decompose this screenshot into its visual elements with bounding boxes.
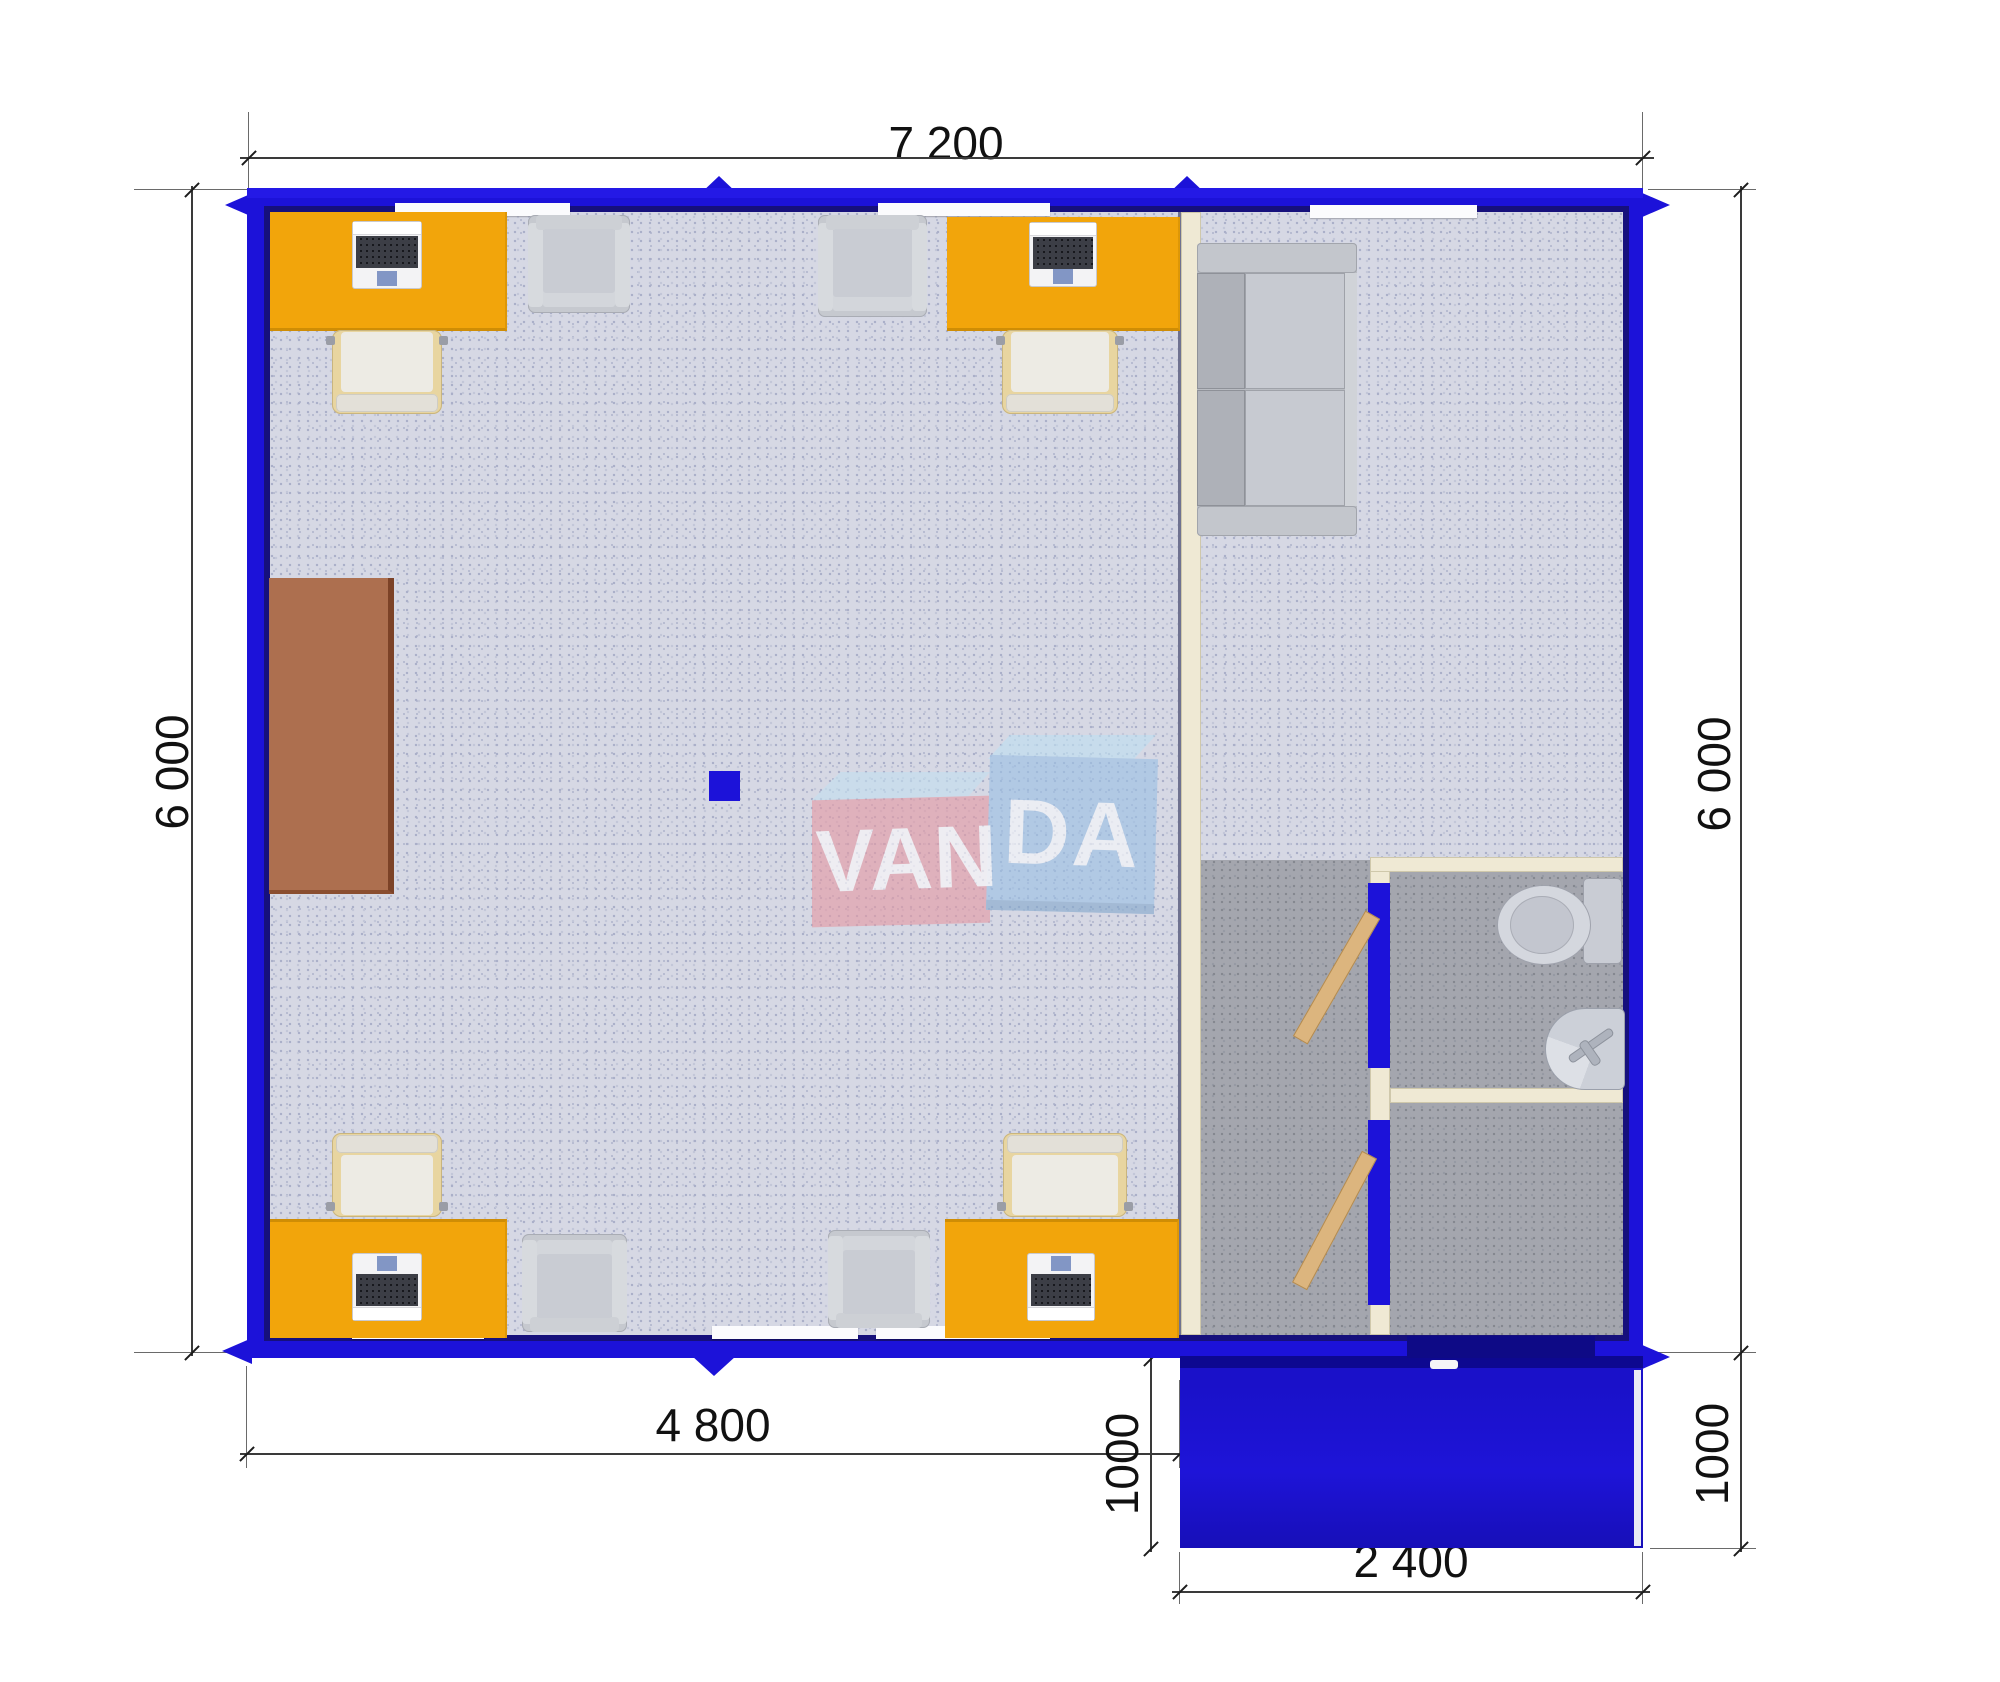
dim-line-top — [240, 157, 1654, 159]
vanda-logo: VAN DA — [800, 730, 1180, 940]
laptop-icon — [353, 222, 421, 288]
dim-right-height: 6 000 — [1687, 664, 1741, 884]
armchair-icon — [828, 1230, 930, 1328]
module-joint-lug-icon — [692, 1356, 736, 1376]
task-chair-icon — [1002, 330, 1118, 414]
logo-text-right: DA — [990, 779, 1154, 890]
dim-left-porch-depth: 1000 — [1095, 1364, 1149, 1564]
armchair-icon — [528, 215, 630, 313]
door-handle-icon — [1430, 1360, 1458, 1369]
dim-line-left — [191, 186, 193, 1356]
porch-edge — [1634, 1370, 1641, 1546]
wc-door-jamb — [1368, 883, 1390, 1068]
armchair-icon — [522, 1234, 627, 1332]
corner-lug-icon — [1640, 1344, 1670, 1370]
wc-wall-middle — [1390, 1088, 1623, 1103]
wc-door-jamb — [1368, 1120, 1390, 1305]
cabinet-icon — [269, 578, 394, 894]
entrance-door — [1407, 1336, 1595, 1358]
dim-line-bottom-left — [240, 1453, 1188, 1455]
logo-text-left: VAN — [814, 805, 992, 913]
window-strip — [1310, 205, 1477, 218]
task-chair-icon — [1003, 1133, 1127, 1217]
sofa-icon — [1197, 243, 1357, 536]
corner-lug-icon — [1640, 192, 1670, 218]
floor-plan-canvas: 7 200 6 000 6 000 1000 4 800 1000 2 400 — [0, 0, 2000, 1682]
entrance-porch — [1180, 1356, 1643, 1548]
task-chair-icon — [332, 330, 442, 414]
wc-wall-top — [1370, 857, 1623, 872]
laptop-icon — [1030, 223, 1096, 286]
dim-top-width: 7 200 — [846, 116, 1046, 170]
laptop-icon — [1028, 1254, 1094, 1320]
dim-line-porch-bottom — [1172, 1591, 1650, 1593]
support-column-icon — [709, 771, 740, 801]
task-chair-icon — [332, 1133, 442, 1217]
laptop-icon — [353, 1254, 421, 1320]
toilet-icon — [1497, 885, 1591, 965]
dim-line-right — [1740, 186, 1742, 1552]
dim-right-porch-depth: 1000 — [1685, 1354, 1739, 1554]
dim-line-porch-left — [1150, 1356, 1152, 1552]
dim-bottom-left-width: 4 800 — [613, 1398, 813, 1452]
armchair-icon — [818, 215, 927, 317]
